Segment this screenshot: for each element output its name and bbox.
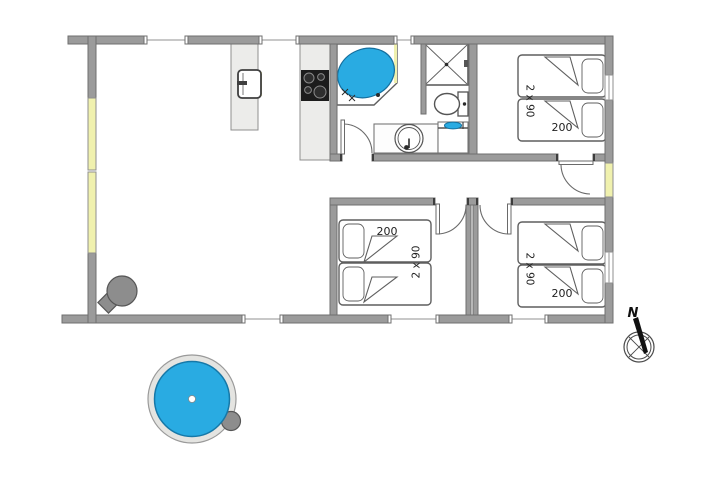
bedroom-top-right: 2 x 90 200 [518,55,606,141]
wall-segment [546,315,613,323]
wall-cap [144,36,147,44]
kitchen-counter [300,44,330,160]
kitchen-counters [231,44,330,160]
washer-water [445,122,462,129]
bedroom-middle-door-leaf [436,204,440,234]
jamb-tick [511,198,513,205]
wall-kitchen-bathroom [330,44,337,156]
bedroom-top-right-door-leaf [559,161,593,165]
wall-segment [297,36,396,44]
door-jambs [340,154,595,205]
wall-hall-bottom [330,198,435,205]
burner [305,87,312,94]
wall-segment [68,36,146,44]
bathroom-door-arc [344,124,372,153]
wall-cap [411,36,414,44]
bed-size-label: 2 x 90 [524,85,536,118]
hot-tub-center [189,396,196,403]
kitchen-sink-icon [237,70,262,98]
bedroom-top-right-door-arc [561,165,590,194]
floor-plan: 2 x 90 200 200 2 x 90 2 x 90 200 [0,0,718,479]
shower-handle [464,60,469,67]
window-hall-glass [605,163,613,197]
jamb-tick [467,198,469,205]
north-label: N [628,306,639,321]
wall-hall-top [372,154,558,161]
bedroom-bottom-right-door-leaf [508,204,512,234]
wall-segment [605,283,613,323]
jamb-tick [556,154,558,161]
wall-segment [605,36,613,75]
window-left-glass [88,98,96,170]
wall-shower-partition [421,44,426,114]
wall-segment [412,36,613,44]
wall-segment [88,253,96,323]
wall-cap [394,36,397,44]
wall-segment [605,100,613,163]
basin-tap-base [404,145,409,150]
wall-hall-bottom [511,198,605,205]
jamb-tick [372,154,374,161]
jamb-tick [340,154,342,161]
bedroom-middle: 200 2 x 90 [339,220,431,305]
bed-length-label: 200 [377,225,398,238]
bed-length-label: 200 [552,121,573,134]
shower-cabin-icon [425,44,469,85]
wood-stove-icon [98,276,137,313]
wall-cap [280,315,283,323]
toilet-button [463,102,466,105]
wall-segment [281,315,390,323]
wall-cap [185,36,188,44]
wall-cap [259,36,262,44]
jamb-tick [476,198,478,205]
wall-bedroom-divider [473,205,478,315]
jamb-tick [593,154,595,161]
wall-cap [509,315,512,323]
washing-machine-icon [438,122,468,153]
bed-size-label: 2 x 90 [411,246,423,279]
wall-segment [605,197,613,252]
compass-rose-icon: N [624,306,654,362]
washbasin-icon [374,124,438,153]
bathtub-screen-glass [394,44,397,83]
bed-size-label: 2 x 90 [524,253,536,286]
wall-bedroom-left [330,205,337,315]
wall-cap [388,315,391,323]
floor-plan-page: 2 x 90 200 200 2 x 90 2 x 90 200 [0,0,718,479]
hot-tub-icon [148,355,241,443]
bathroom [330,40,469,153]
jamb-tick [433,198,435,205]
wall-cap [296,36,299,44]
sink-tap [237,81,247,85]
wall-cap [242,315,245,323]
bedroom-bottom-right: 2 x 90 200 [518,222,606,307]
bedroom-middle-door-arc [438,205,466,234]
toilet-icon [435,92,469,116]
shower-drain [445,63,449,67]
wall-bathroom-bedroom [469,44,477,156]
wall-cap [436,315,439,323]
wall-segment [186,36,261,44]
toilet-bowl [435,94,460,115]
wall-cap [545,315,548,323]
bed-length-label: 200 [552,287,573,300]
burner [314,86,326,98]
bedroom-bottom-right-door-arc [480,205,509,234]
stove-body [107,276,137,306]
window-left-glass [88,172,96,253]
wall-bedroom-divider [466,205,471,315]
bathroom-door-leaf [341,120,345,154]
wall-segment [437,315,511,323]
burner [304,73,314,83]
wall-segment [88,36,96,98]
cooktop-icon [301,70,329,101]
bathtub-drain [376,93,380,97]
burner [318,74,325,81]
